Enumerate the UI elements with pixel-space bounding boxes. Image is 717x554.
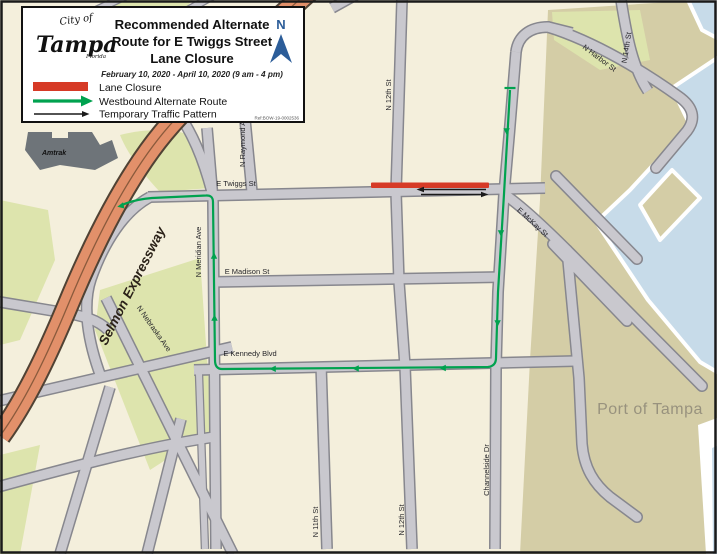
map-canvas: E Twiggs St E Madison St E Kennedy Blvd … (0, 0, 717, 554)
legend-swatch-lane-closure (33, 82, 88, 91)
legend-label-alternate-route: Westbound Alternate Route (99, 96, 227, 108)
street-label-n-12th-top: N 12th St (384, 78, 393, 110)
street-label-n-12th-bottom: N 12th St (397, 503, 406, 535)
legend-box: City of Tampa Florida Recommended Altern… (22, 7, 304, 122)
lane-closure-bar (371, 183, 489, 189)
legend-label-lane-closure: Lane Closure (99, 82, 162, 94)
street-label-n-11th: N 11th St (311, 506, 320, 538)
north-arrow-label: N (276, 17, 285, 32)
map-date-range: February 10, 2020 - April 10, 2020 (9 am… (101, 70, 283, 79)
legend-label-traffic-pattern: Temporary Traffic Pattern (99, 109, 217, 121)
map-title-line3: Lane Closure (150, 51, 234, 66)
place-label-amtrak: Amtrak (41, 150, 67, 157)
street-label-channelside: Channelside Dr (482, 444, 491, 496)
logo-florida: Florida (85, 54, 106, 60)
map-title-line2: Route for E Twiggs Street (112, 34, 273, 49)
street-label-e-madison: E Madison St (225, 267, 271, 276)
street-label-e-kennedy: E Kennedy Blvd (223, 349, 276, 358)
reference-number: Ref:BOW-19-0002536 (255, 116, 300, 121)
street-label-n-meridian: N Meridian Ave (194, 227, 203, 278)
map-title-line1: Recommended Alternate (115, 17, 270, 32)
detour-map: E Twiggs St E Madison St E Kennedy Blvd … (0, 0, 717, 554)
street-label-e-twiggs: E Twiggs St (216, 179, 256, 188)
place-label-port-of-tampa: Port of Tampa (597, 401, 703, 418)
